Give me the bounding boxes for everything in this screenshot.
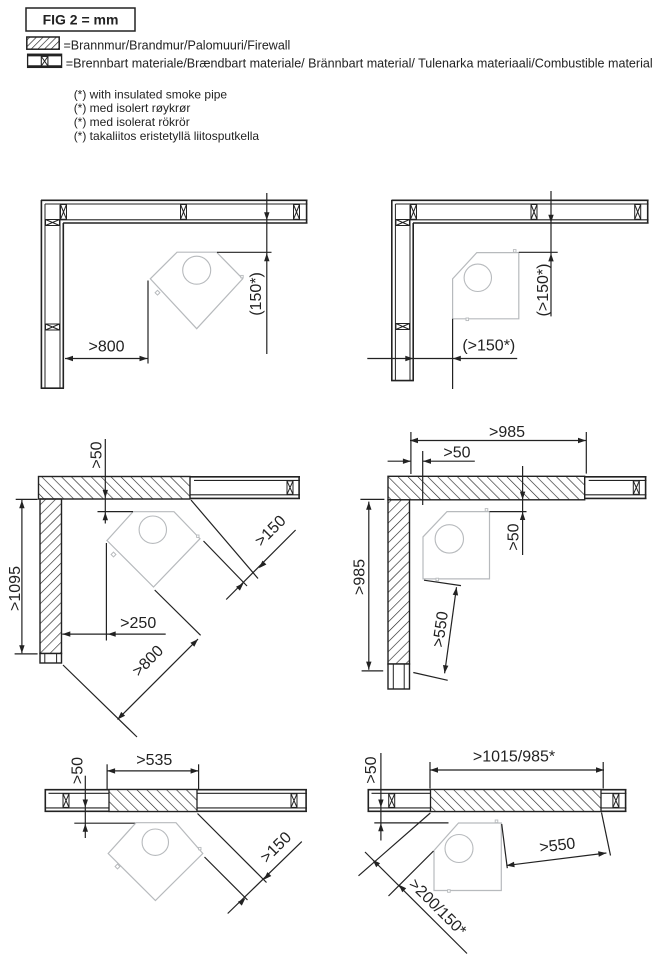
svg-text:>1095: >1095 (7, 566, 24, 611)
svg-text:>535: >535 (136, 752, 172, 769)
svg-text:(*) with insulated smoke pipe: (*) with insulated smoke pipe (74, 87, 228, 101)
svg-text:(*) med isolert røykrør: (*) med isolert røykrør (74, 101, 191, 115)
svg-text:(*) takaliitos eristetyllä lii: (*) takaliitos eristetyllä liitosputkell… (74, 129, 260, 143)
svg-text:>250: >250 (120, 615, 156, 632)
svg-text:=Brannmur/Brandmur/Palomuuri/F: =Brannmur/Brandmur/Palomuuri/Firewall (64, 39, 291, 53)
svg-text:(>150*): (>150*) (535, 264, 552, 317)
svg-text:>50: >50 (506, 523, 523, 550)
svg-text:>50: >50 (443, 445, 470, 462)
svg-text:(150*): (150*) (248, 272, 265, 316)
svg-text:(*) med isolerat rökrör: (*) med isolerat rökrör (74, 115, 190, 129)
svg-text:=Brennbart materiale/Brændbart: =Brennbart materiale/Brændbart materiale… (66, 57, 653, 71)
svg-text:>985: >985 (489, 424, 525, 441)
svg-text:>1015/985*: >1015/985* (473, 749, 555, 766)
svg-text:(>150*): (>150*) (462, 338, 515, 355)
svg-text:FIG 2 = mm: FIG 2 = mm (43, 12, 119, 28)
svg-text:>50: >50 (363, 756, 380, 783)
svg-text:>800: >800 (88, 339, 124, 356)
svg-text:>985: >985 (352, 559, 369, 595)
svg-text:>50: >50 (70, 757, 87, 784)
svg-text:>50: >50 (89, 441, 106, 468)
